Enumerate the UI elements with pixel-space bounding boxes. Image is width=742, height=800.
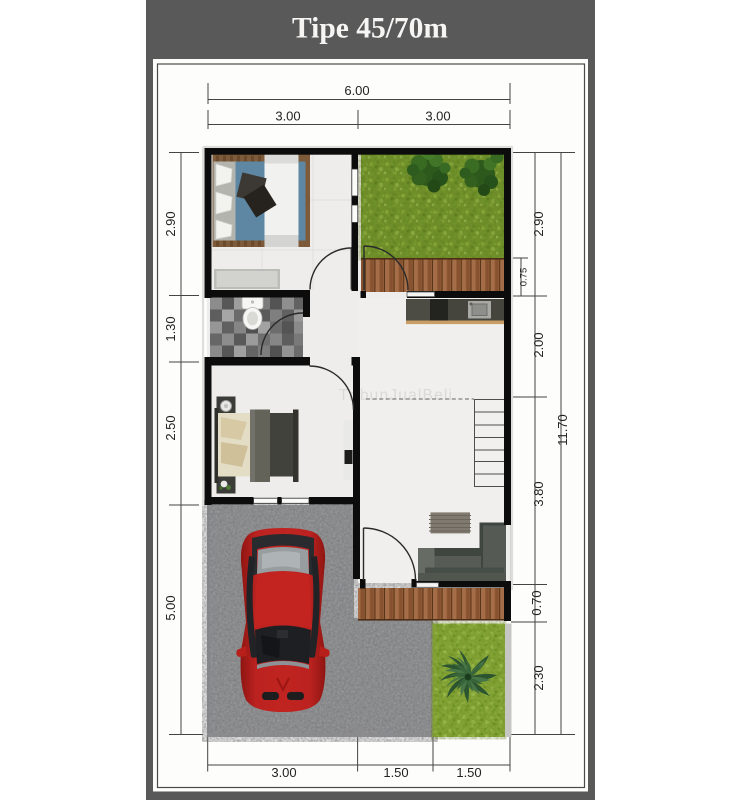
svg-text:2.90: 2.90 — [531, 211, 546, 236]
svg-text:3.00: 3.00 — [425, 109, 450, 124]
svg-text:2.90: 2.90 — [163, 211, 178, 236]
svg-text:6.00: 6.00 — [344, 83, 369, 98]
svg-text:1.30: 1.30 — [163, 316, 178, 341]
svg-text:2.00: 2.00 — [531, 332, 546, 357]
svg-text:3.80: 3.80 — [531, 481, 546, 506]
svg-text:11.70: 11.70 — [555, 414, 570, 446]
svg-text:2.50: 2.50 — [163, 415, 178, 440]
svg-text:0.70: 0.70 — [529, 590, 544, 615]
svg-text:2.30: 2.30 — [531, 665, 546, 690]
svg-text:1.50: 1.50 — [456, 765, 481, 780]
svg-text:Tipe 45/70m: Tipe 45/70m — [292, 13, 448, 45]
svg-text:0.75: 0.75 — [519, 268, 530, 287]
svg-text:3.00: 3.00 — [271, 765, 296, 780]
svg-text:3.00: 3.00 — [275, 109, 300, 124]
svg-text:1.50: 1.50 — [383, 765, 408, 780]
svg-text:5.00: 5.00 — [163, 595, 178, 620]
